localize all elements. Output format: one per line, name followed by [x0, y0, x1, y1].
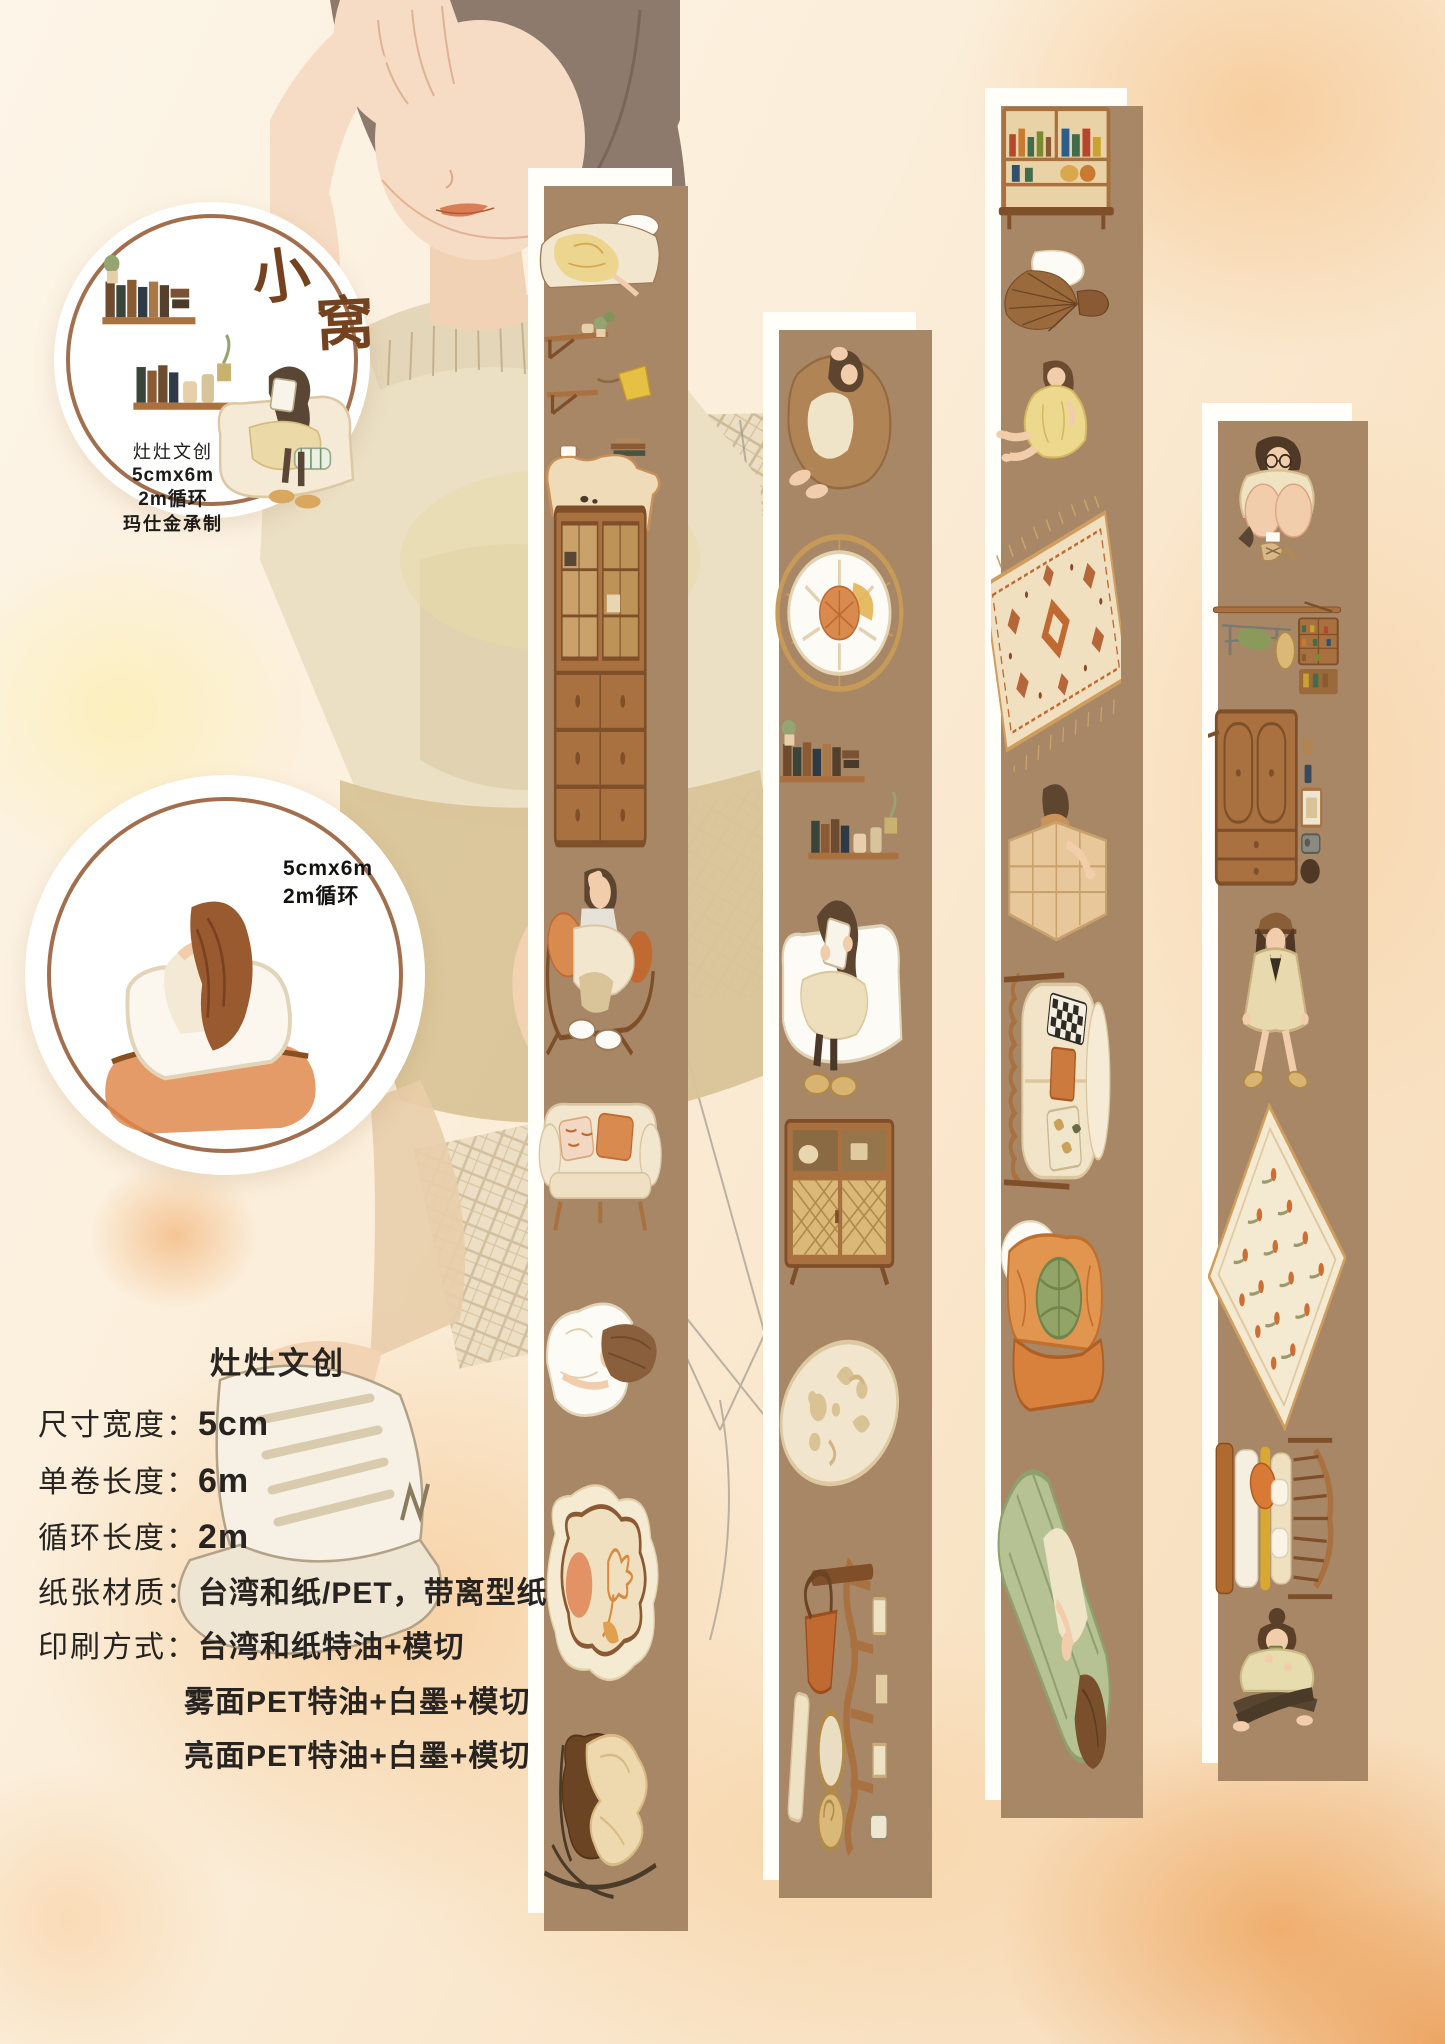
- spec-label: 纸张材质：: [38, 1567, 198, 1622]
- spec-value: 6m: [198, 1454, 249, 1509]
- spec-row: 雾面PET特油+白墨+模切: [184, 1676, 658, 1731]
- spec-value: 台湾和纸特油+模切: [198, 1621, 465, 1676]
- girl-green-blanket-sticker: [991, 1445, 1122, 1805]
- side-bed-sticker: [1208, 1437, 1346, 1600]
- jar-hutch-sticker: [991, 95, 1122, 235]
- spec-label: 单卷长度：: [38, 1456, 198, 1511]
- tape-roll-badge-1: 小 窝 灶灶文创 5cmx6m 2m循环 玛仕金承制: [54, 202, 370, 518]
- girl-drinking-tea-sticker: [1208, 1605, 1346, 1753]
- spec-value: 雾面PET特油+白墨+模切: [184, 1676, 530, 1731]
- messy-bed-sticker: [534, 190, 666, 312]
- spec-label: 循环长度：: [38, 1512, 198, 1567]
- badge2-size-text: 5cmx6m: [283, 855, 373, 883]
- girl-cube-chair-sticker: [991, 778, 1122, 962]
- spec-value: 2m: [198, 1510, 249, 1565]
- spec-row: 印刷方式：台湾和纸特油+模切: [38, 1621, 658, 1676]
- tape-strip-2: [763, 312, 916, 1880]
- tape-strip-4: [1202, 403, 1352, 1763]
- girl-armchair-sticker: [534, 860, 666, 1062]
- badge-girl-back-illustration: [75, 885, 340, 1161]
- loveseat-sofa-sticker: [534, 1072, 666, 1252]
- badge-maker-text: 玛仕金承制: [70, 512, 276, 536]
- poster-title-char-1: 小: [248, 244, 314, 310]
- watercolor-blob: [1230, 1880, 1445, 2044]
- poster-title-char-2: 窝: [315, 295, 376, 356]
- girl-yellow-dress-sticker: [991, 355, 1122, 492]
- product-specs: 灶灶文创 尺寸宽度：5cm单卷长度：6m循环长度：2m纸张材质：台湾和纸/PET…: [38, 1338, 658, 1785]
- side-dresser-sticker: [1208, 695, 1346, 900]
- book-shelves-sticker: [769, 712, 910, 872]
- spec-label: 印刷方式：: [38, 1621, 198, 1676]
- tape-strip-3: [985, 88, 1127, 1800]
- watercolor-blob: [0, 1760, 230, 2044]
- diamond-quilt-sticker: [1208, 1103, 1346, 1431]
- spec-row: 循环长度：2m: [38, 1510, 658, 1567]
- coat-rack-sticker: [769, 1548, 910, 1865]
- rattan-cabinet-sticker: [769, 1106, 910, 1292]
- tape-roll-badge-2: 5cmx6m 2m循环: [25, 775, 425, 1175]
- wall-shelf-lamp-sticker: [534, 300, 666, 432]
- leaf-pouf-sticker: [991, 1205, 1122, 1438]
- glass-cabinet-sticker: [534, 502, 666, 858]
- badge2-loop-text: 2m循环: [283, 883, 373, 911]
- spec-row: 亮面PET特油+白墨+模切: [184, 1730, 658, 1785]
- specs-rows: 尺寸宽度：5cm单卷长度：6m循环长度：2m纸张材质：台湾和纸/PET，带离型纸…: [38, 1397, 658, 1785]
- spec-row: 尺寸宽度：5cm: [38, 1397, 658, 1454]
- poster-page: 小 窝 灶灶文创 5cmx6m 2m循环 玛仕金承制 5cmx6m 2m循环 灶…: [0, 0, 1445, 2044]
- badge-brand-text: 灶灶文创: [70, 440, 276, 464]
- girl-crouching-sticker: [1208, 430, 1346, 585]
- spec-label: 尺寸宽度：: [38, 1399, 198, 1454]
- papasan-chair-sticker: [769, 518, 910, 708]
- badge-size-text: 5cmx6m: [70, 464, 276, 488]
- side-couch-sticker: [991, 966, 1122, 1196]
- spec-value: 台湾和纸/PET，带离型纸: [198, 1567, 548, 1622]
- specs-brand-title: 灶灶文创: [210, 1338, 658, 1383]
- badge-loop-text: 2m循环: [70, 488, 276, 512]
- spec-value: 5cm: [198, 1397, 269, 1452]
- spec-row: 单卷长度：6m: [38, 1454, 658, 1511]
- spec-value: 亮面PET特油+白墨+模切: [184, 1730, 530, 1785]
- rattan-fan-sticker: [991, 248, 1122, 352]
- girl-standing-coat-sticker: [1208, 905, 1346, 1095]
- oval-lace-rug-sticker: [769, 1298, 910, 1528]
- girl-reading-sofa-sticker: [769, 876, 910, 1102]
- kilim-rug-sticker: [991, 496, 1122, 772]
- spec-row: 纸张材质：台湾和纸/PET，带离型纸: [38, 1567, 658, 1622]
- girl-in-blanket-sticker: [769, 340, 910, 512]
